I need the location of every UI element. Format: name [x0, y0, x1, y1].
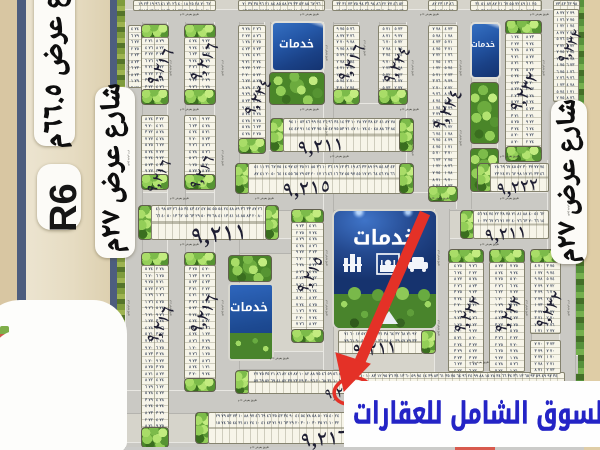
svg-text:R6: R6 — [43, 183, 85, 232]
